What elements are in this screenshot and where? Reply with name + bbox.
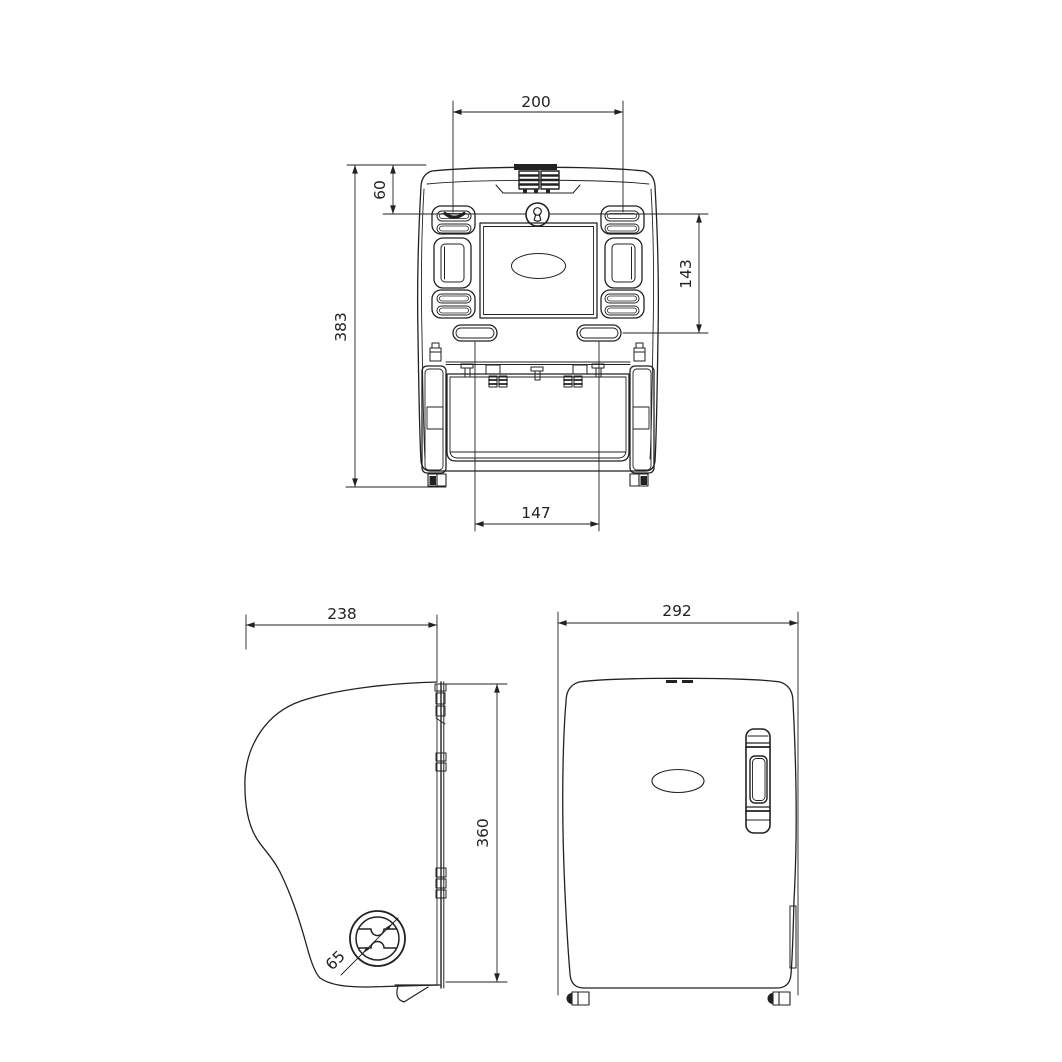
dim-label-238: 238 [327, 605, 357, 623]
dim-label-383: 383 [332, 312, 350, 342]
side-back-plate [435, 682, 446, 988]
rear-feet [428, 474, 648, 486]
oval-badge [652, 770, 704, 793]
side-foot [397, 986, 428, 1002]
front-top-latch [664, 679, 696, 684]
dim-label-147: 147 [521, 504, 551, 522]
dim-238 [246, 615, 437, 681]
front-view [558, 612, 798, 1005]
side-body-outline [245, 682, 437, 987]
dim-label-143: 143 [677, 259, 695, 289]
dim-label-65: 65 [322, 947, 349, 974]
rear-center-panel [480, 223, 597, 318]
dim-200 [453, 101, 623, 212]
dim-label-60: 60 [371, 180, 389, 200]
dim-147 [475, 342, 599, 531]
dim-label-360: 360 [474, 818, 492, 848]
rear-top-latch [514, 164, 559, 193]
front-feet [567, 992, 791, 1005]
rear-view [346, 101, 708, 531]
dim-65 [341, 918, 398, 975]
side-view [245, 615, 507, 1002]
rear-lower-slots [453, 325, 621, 341]
rear-body-outline [418, 167, 659, 471]
rear-mechanism [422, 343, 654, 473]
dispenser-lever [746, 729, 770, 833]
rear-mount-slots-right [601, 206, 644, 318]
dim-383 [346, 165, 446, 487]
technical-drawing-canvas: 200 60 383 143 147 238 360 65 292 [0, 0, 1062, 1062]
dim-label-292: 292 [662, 602, 692, 620]
oval-emboss [512, 254, 566, 279]
rear-mount-slots-left [432, 206, 475, 318]
dimension-labels: 200 60 383 143 147 238 360 65 292 [322, 93, 695, 974]
drawing-sheet: 200 60 383 143 147 238 360 65 292 [0, 0, 1062, 1062]
dim-label-200: 200 [521, 93, 551, 111]
rear-inner-wall-right [650, 189, 654, 459]
